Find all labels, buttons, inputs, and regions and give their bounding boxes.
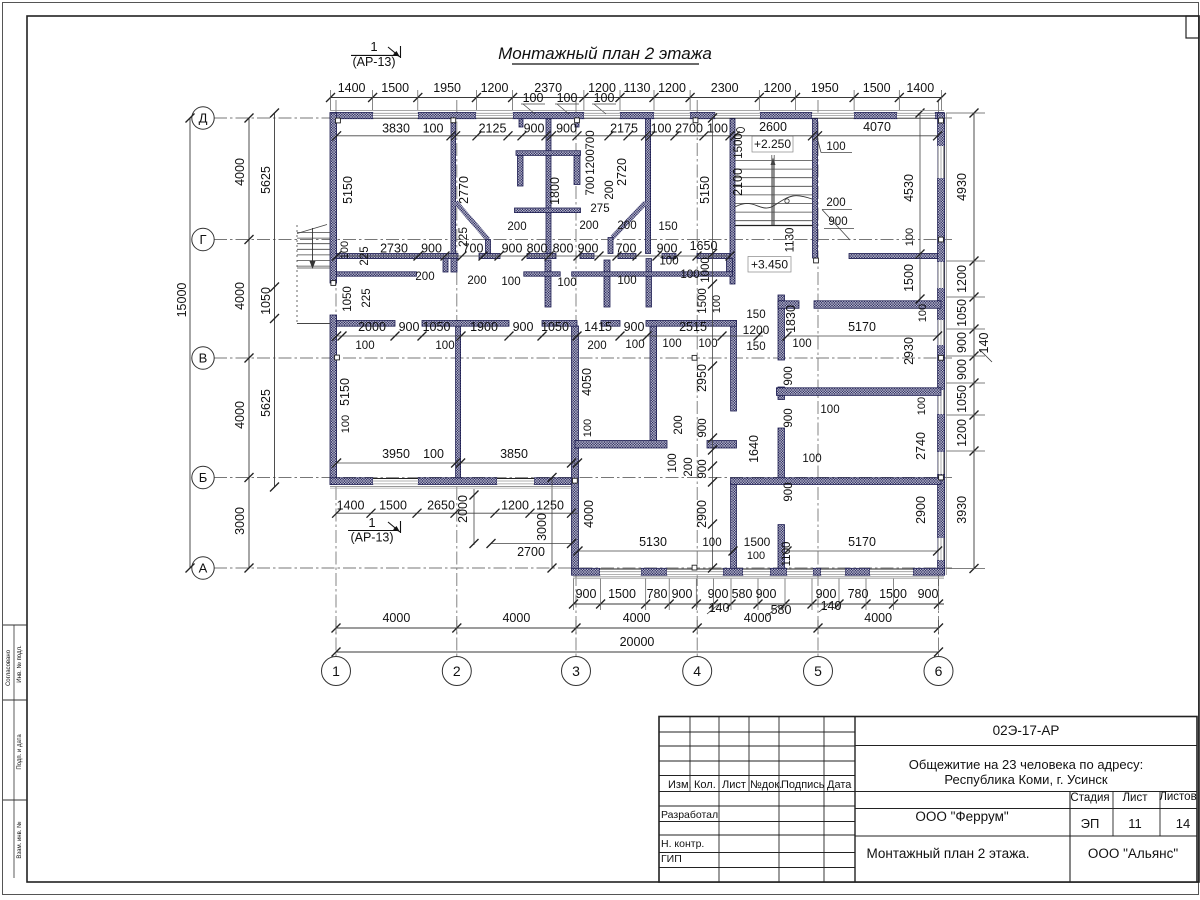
svg-text:4930: 4930 — [955, 173, 969, 201]
svg-text:+3.450: +3.450 — [751, 258, 788, 272]
svg-text:1100: 1100 — [781, 542, 793, 567]
svg-text:200: 200 — [467, 275, 486, 287]
svg-text:Изм.: Изм. — [668, 779, 692, 791]
svg-text:100: 100 — [662, 338, 681, 350]
svg-text:2000: 2000 — [456, 495, 470, 523]
svg-text:100: 100 — [904, 228, 916, 246]
svg-text:Общежитие на 23 человека по ад: Общежитие на 23 человека по адресу: — [909, 757, 1143, 772]
svg-text:100: 100 — [582, 419, 594, 437]
svg-text:2175: 2175 — [610, 122, 638, 136]
svg-text:1200: 1200 — [743, 323, 770, 337]
svg-text:5130: 5130 — [639, 535, 667, 549]
svg-text:ЭП: ЭП — [1081, 816, 1100, 831]
svg-text:3930: 3930 — [955, 496, 969, 524]
svg-text:Республика Коми, г. Усинск: Республика Коми, г. Усинск — [944, 772, 1107, 787]
svg-text:2770: 2770 — [457, 176, 471, 204]
svg-text:4000: 4000 — [382, 611, 410, 625]
svg-text:4000: 4000 — [233, 158, 247, 186]
svg-text:580: 580 — [732, 587, 753, 601]
svg-text:3850: 3850 — [500, 447, 528, 461]
svg-text:100: 100 — [792, 338, 811, 350]
svg-text:5625: 5625 — [259, 166, 273, 194]
svg-text:3000: 3000 — [233, 507, 247, 535]
svg-text:Лист: Лист — [1123, 792, 1149, 804]
svg-text:1: 1 — [332, 663, 340, 679]
svg-text:1950: 1950 — [811, 81, 839, 95]
svg-text:1500: 1500 — [379, 499, 407, 513]
svg-text:14: 14 — [1176, 816, 1190, 831]
svg-text:4000: 4000 — [623, 611, 651, 625]
svg-text:11: 11 — [1128, 816, 1142, 831]
svg-text:100: 100 — [423, 447, 444, 461]
svg-text:5: 5 — [814, 663, 822, 679]
svg-text:2740: 2740 — [914, 432, 928, 460]
svg-text:900: 900 — [556, 122, 577, 136]
svg-text:200: 200 — [683, 457, 695, 476]
svg-text:700: 700 — [585, 130, 597, 149]
svg-text:1250: 1250 — [536, 499, 564, 513]
svg-text:5170: 5170 — [848, 320, 876, 334]
svg-text:100: 100 — [557, 91, 578, 105]
svg-text:1200: 1200 — [955, 419, 969, 447]
svg-text:1130: 1130 — [624, 81, 651, 95]
svg-text:900: 900 — [783, 408, 795, 427]
svg-text:1200: 1200 — [501, 499, 529, 513]
svg-text:1200: 1200 — [481, 81, 509, 95]
svg-text:900: 900 — [783, 482, 795, 501]
svg-text:100: 100 — [702, 537, 721, 549]
svg-text:2650: 2650 — [427, 499, 455, 513]
svg-text:15000: 15000 — [175, 283, 189, 318]
svg-text:2720: 2720 — [615, 158, 629, 186]
svg-text:Н. контр.: Н. контр. — [661, 838, 704, 850]
svg-text:1650: 1650 — [690, 239, 718, 253]
svg-text:200: 200 — [587, 340, 606, 352]
svg-text:100: 100 — [594, 91, 615, 105]
svg-text:200: 200 — [579, 220, 598, 232]
svg-text:900: 900 — [624, 320, 645, 334]
svg-text:4000: 4000 — [744, 611, 772, 625]
svg-text:Дата: Дата — [827, 779, 852, 791]
svg-text:1: 1 — [370, 39, 377, 54]
svg-text:Б: Б — [199, 470, 208, 485]
svg-text:1950: 1950 — [433, 81, 461, 95]
svg-text:900: 900 — [657, 242, 678, 256]
svg-text:№док.: №док. — [750, 779, 782, 791]
svg-text:4000: 4000 — [233, 401, 247, 429]
svg-text:2730: 2730 — [380, 242, 408, 256]
svg-text:1000: 1000 — [700, 257, 712, 283]
svg-text:1500: 1500 — [381, 81, 409, 95]
svg-text:700: 700 — [585, 176, 597, 195]
svg-text:2900: 2900 — [695, 500, 709, 528]
svg-text:2125: 2125 — [479, 122, 507, 136]
svg-text:2000: 2000 — [358, 320, 386, 334]
svg-text:А: А — [199, 561, 208, 576]
svg-text:Подпись: Подпись — [781, 779, 825, 791]
svg-text:(АР-13): (АР-13) — [352, 55, 395, 69]
svg-text:150: 150 — [746, 309, 765, 321]
svg-text:4000: 4000 — [233, 282, 247, 310]
svg-text:1400: 1400 — [337, 499, 365, 513]
svg-text:100: 100 — [698, 338, 717, 350]
svg-text:+2.250: +2.250 — [754, 137, 791, 151]
svg-text:2100: 2100 — [731, 168, 745, 196]
svg-text:20000: 20000 — [620, 635, 655, 649]
svg-text:1: 1 — [368, 515, 375, 530]
svg-text:1500: 1500 — [697, 288, 709, 314]
svg-text:Стадия: Стадия — [1070, 792, 1109, 804]
svg-text:100: 100 — [617, 275, 636, 287]
svg-text:900: 900 — [697, 418, 709, 437]
svg-text:780: 780 — [848, 587, 869, 601]
svg-text:1200: 1200 — [585, 149, 597, 175]
svg-text:1200: 1200 — [658, 81, 686, 95]
svg-text:Г: Г — [199, 232, 206, 247]
svg-text:900: 900 — [828, 216, 847, 228]
svg-text:100: 100 — [707, 122, 728, 136]
svg-text:Взам. инв. №: Взам. инв. № — [16, 821, 23, 858]
svg-text:5150: 5150 — [341, 176, 355, 204]
svg-text:1050: 1050 — [541, 320, 569, 334]
svg-text:3000: 3000 — [535, 513, 549, 541]
svg-text:900: 900 — [502, 242, 523, 256]
svg-text:02Э-17-АР: 02Э-17-АР — [993, 723, 1060, 738]
svg-text:100: 100 — [667, 453, 679, 472]
svg-text:1800: 1800 — [548, 177, 562, 205]
svg-text:140: 140 — [977, 333, 991, 354]
svg-text:100: 100 — [802, 453, 821, 465]
svg-text:900: 900 — [697, 459, 709, 478]
svg-text:100: 100 — [680, 269, 699, 281]
svg-text:140: 140 — [821, 599, 842, 613]
svg-text:1500: 1500 — [902, 264, 916, 292]
svg-text:100: 100 — [826, 141, 845, 153]
svg-text:1830: 1830 — [784, 305, 798, 333]
svg-text:100: 100 — [916, 397, 928, 415]
svg-text:200: 200 — [826, 197, 845, 209]
svg-text:100: 100 — [820, 404, 839, 416]
svg-text:900: 900 — [955, 332, 969, 353]
svg-text:1400: 1400 — [338, 81, 366, 95]
svg-text:800: 800 — [553, 242, 574, 256]
svg-text:4000: 4000 — [582, 500, 596, 528]
svg-text:3: 3 — [572, 663, 580, 679]
svg-text:900: 900 — [421, 242, 442, 256]
svg-text:700: 700 — [463, 242, 484, 256]
svg-text:900: 900 — [955, 359, 969, 380]
svg-text:2900: 2900 — [914, 496, 928, 524]
svg-text:100: 100 — [651, 122, 672, 136]
svg-text:2700: 2700 — [517, 545, 545, 559]
svg-text:900: 900 — [576, 587, 597, 601]
svg-text:Инв. № подл.: Инв. № подл. — [16, 645, 23, 683]
svg-text:2300: 2300 — [711, 81, 739, 95]
svg-text:900: 900 — [399, 320, 420, 334]
svg-text:800: 800 — [527, 242, 548, 256]
svg-text:100: 100 — [557, 277, 576, 289]
svg-text:1415: 1415 — [584, 320, 612, 334]
svg-text:100: 100 — [747, 550, 765, 562]
svg-text:1500: 1500 — [744, 535, 771, 549]
svg-text:200: 200 — [617, 220, 636, 232]
svg-text:1400: 1400 — [906, 81, 934, 95]
svg-text:100: 100 — [625, 339, 644, 351]
svg-text:100: 100 — [340, 415, 352, 433]
svg-text:900: 900 — [708, 587, 729, 601]
svg-text:1050: 1050 — [423, 320, 451, 334]
svg-text:В: В — [199, 351, 208, 366]
svg-text:2700: 2700 — [675, 122, 703, 136]
svg-text:225: 225 — [359, 246, 371, 265]
svg-text:4070: 4070 — [863, 120, 891, 134]
svg-text:ГИП: ГИП — [661, 853, 682, 865]
svg-text:Согласовано: Согласовано — [6, 649, 12, 686]
svg-text:900: 900 — [672, 587, 693, 601]
svg-text:1200: 1200 — [955, 265, 969, 293]
svg-text:Монтажный план 2 этажа: Монтажный план 2 этажа — [498, 44, 712, 63]
svg-text:5170: 5170 — [848, 535, 876, 549]
svg-text:275: 275 — [590, 203, 609, 215]
svg-text:2515: 2515 — [679, 320, 707, 334]
svg-text:Д: Д — [199, 111, 208, 126]
svg-text:5150: 5150 — [698, 176, 712, 204]
svg-text:3830: 3830 — [382, 122, 410, 136]
svg-text:3950: 3950 — [382, 447, 410, 461]
svg-text:1050: 1050 — [259, 287, 273, 315]
svg-text:100: 100 — [355, 340, 374, 352]
svg-text:900: 900 — [756, 587, 777, 601]
svg-text:(АР-13): (АР-13) — [350, 531, 393, 545]
svg-text:Лист: Лист — [722, 779, 746, 791]
svg-text:1640: 1640 — [747, 435, 761, 463]
svg-text:100: 100 — [659, 256, 678, 268]
svg-text:1900: 1900 — [470, 320, 498, 334]
svg-text:5625: 5625 — [259, 389, 273, 417]
svg-text:Кол.: Кол. — [694, 779, 716, 791]
svg-text:900: 900 — [783, 366, 795, 385]
svg-text:1130: 1130 — [785, 228, 797, 253]
svg-text:1500: 1500 — [879, 587, 907, 601]
svg-text:4530: 4530 — [902, 174, 916, 202]
svg-text:200: 200 — [604, 180, 616, 199]
svg-text:1500: 1500 — [733, 133, 745, 159]
svg-text:150: 150 — [658, 221, 677, 233]
svg-text:4: 4 — [693, 663, 701, 679]
svg-text:200: 200 — [415, 271, 434, 283]
svg-text:100: 100 — [523, 91, 544, 105]
svg-text:4000: 4000 — [502, 611, 530, 625]
svg-text:Монтажный план 2 этажа.: Монтажный план 2 этажа. — [867, 846, 1030, 861]
svg-text:150: 150 — [746, 341, 765, 353]
svg-text:100: 100 — [917, 304, 929, 322]
svg-text:100: 100 — [423, 122, 444, 136]
svg-text:225: 225 — [361, 288, 373, 307]
svg-text:900: 900 — [578, 242, 599, 256]
svg-text:ООО "Альянс": ООО "Альянс" — [1088, 846, 1178, 861]
svg-text:ООО "Феррум": ООО "Феррум" — [915, 809, 1009, 824]
svg-text:700: 700 — [616, 242, 637, 256]
svg-text:4050: 4050 — [580, 368, 594, 396]
svg-text:4000: 4000 — [864, 611, 892, 625]
svg-text:100: 100 — [711, 295, 723, 313]
svg-text:200: 200 — [673, 415, 685, 434]
svg-text:900: 900 — [524, 122, 545, 136]
svg-text:2930: 2930 — [902, 337, 916, 365]
svg-text:100: 100 — [339, 241, 351, 259]
svg-text:Листов: Листов — [1159, 791, 1196, 803]
svg-text:5150: 5150 — [338, 378, 352, 406]
svg-text:Подп. и дата: Подп. и дата — [17, 734, 23, 770]
svg-text:2600: 2600 — [759, 120, 787, 134]
svg-text:2950: 2950 — [695, 364, 709, 392]
svg-text:1050: 1050 — [342, 286, 354, 312]
svg-text:1050: 1050 — [955, 385, 969, 413]
svg-text:780: 780 — [647, 587, 668, 601]
svg-text:2: 2 — [453, 663, 461, 679]
svg-text:1500: 1500 — [608, 587, 636, 601]
svg-text:200: 200 — [507, 221, 526, 233]
svg-text:1200: 1200 — [763, 81, 791, 95]
svg-text:Разработал: Разработал — [661, 809, 718, 821]
svg-text:1050: 1050 — [955, 299, 969, 327]
svg-text:1500: 1500 — [863, 81, 891, 95]
svg-text:100: 100 — [501, 276, 520, 288]
svg-text:900: 900 — [918, 587, 939, 601]
svg-text:900: 900 — [513, 320, 534, 334]
svg-text:100: 100 — [435, 340, 454, 352]
svg-text:6: 6 — [935, 663, 943, 679]
svg-text:140: 140 — [709, 601, 730, 615]
